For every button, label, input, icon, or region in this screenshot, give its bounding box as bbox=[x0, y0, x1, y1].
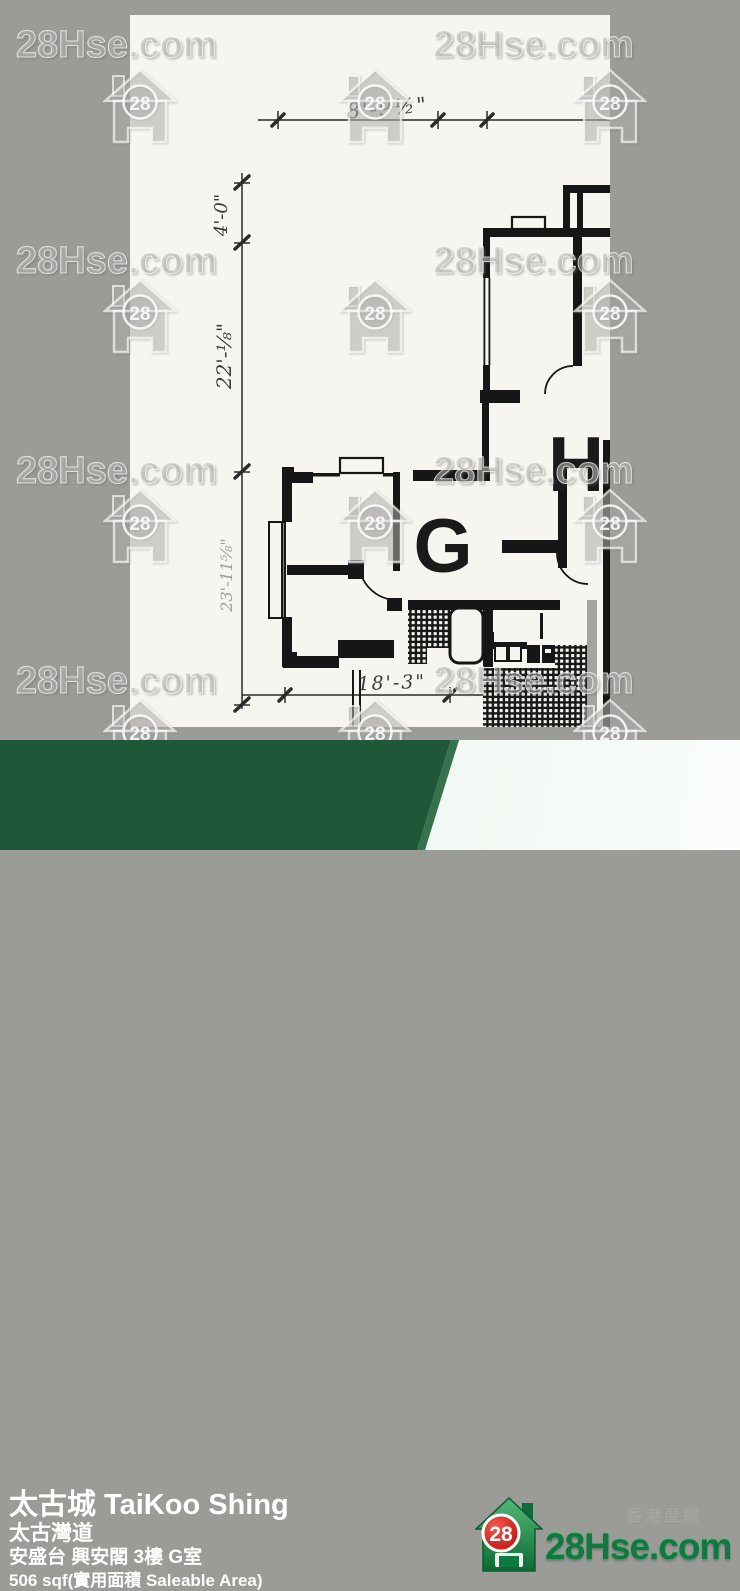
brand-house-icon: 28 bbox=[475, 1497, 543, 1573]
footer-green-panel bbox=[0, 740, 740, 850]
brand-site-name: 28Hse.com bbox=[545, 1526, 731, 1568]
footer-banner: 太古城 TaiKoo Shing 太古灣道 安盛台 興安閣 3樓 G室 506 … bbox=[0, 740, 740, 850]
dim-label-left-top: 4'-0" bbox=[211, 194, 232, 237]
dim-label-bottom: 18'-3" bbox=[357, 671, 426, 695]
door-arc-bedroom1 bbox=[359, 562, 397, 600]
brand-logo-number: 28 bbox=[489, 1523, 513, 1546]
floor-plan-image: 8'-9½" 4'-0" 22'-⅛" 23'-11⅝" 18'-3" bbox=[130, 15, 610, 727]
estate-area: 506 sqf(實用面積 Saleable Area) bbox=[9, 1566, 263, 1591]
fixture bbox=[495, 646, 507, 661]
kitchen-tile-floor bbox=[555, 645, 588, 668]
scan-gray-strip bbox=[587, 600, 597, 727]
kitchen-tile-floor bbox=[483, 668, 588, 727]
brand-tagline: 香港屋網 bbox=[626, 1502, 702, 1526]
bathroom-tile-floor bbox=[408, 610, 450, 648]
dim-label-left-bottom: 23'-11⅝" bbox=[217, 538, 236, 612]
dim-label-top: 8'-9½" bbox=[346, 93, 429, 124]
screenshot-root: 8'-9½" 4'-0" 22'-⅛" 23'-11⅝" 18'-3" bbox=[0, 0, 740, 850]
bathtub bbox=[450, 608, 483, 663]
floor-plan-svg: 8'-9½" 4'-0" 22'-⅛" 23'-11⅝" 18'-3" bbox=[130, 15, 610, 727]
estate-address: 安盛台 興安閣 3樓 G室 bbox=[9, 1542, 202, 1569]
unit-label-g: G bbox=[413, 504, 472, 589]
door-arc-bedroom2 bbox=[545, 366, 573, 394]
dim-label-left-mid: 22'-⅛" bbox=[212, 323, 236, 390]
unit-label-h: H bbox=[548, 420, 604, 508]
fixture bbox=[509, 646, 521, 661]
